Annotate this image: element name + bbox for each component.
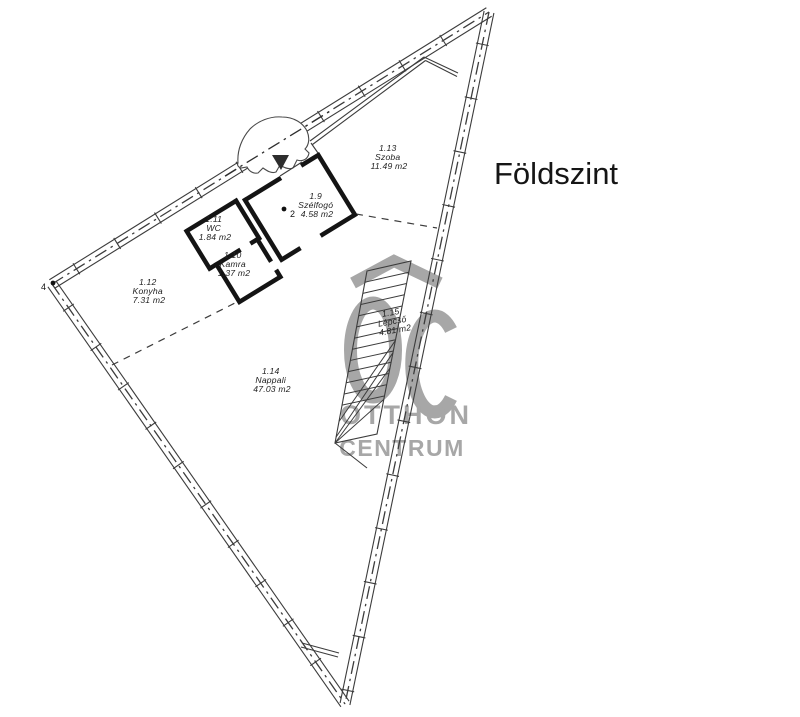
room-label-lepcso: 1.15 Lépcső 4.81 m2 xyxy=(375,304,412,337)
dashed-separation-konyha xyxy=(112,302,237,365)
entrance-point-marker: 2 xyxy=(282,207,295,219)
room-label-konyha: 1.12 Konyha 7.31 m2 xyxy=(133,277,166,305)
drawing-line xyxy=(228,540,239,547)
room-area: 1.84 m2 xyxy=(199,232,231,242)
drawing-line xyxy=(63,304,74,311)
corner-point-label: 4 xyxy=(41,282,46,292)
drawing-line xyxy=(363,283,407,293)
szoba-front-wall-outer xyxy=(310,57,424,141)
room-area: 4.58 m2 xyxy=(301,209,333,219)
south-tip-wall-outer xyxy=(302,643,339,653)
apex-connector-outer xyxy=(424,57,458,73)
drawing-line xyxy=(399,60,406,71)
room-area: 47.03 m2 xyxy=(253,384,290,394)
room-label-kamra: 1.10 Kamra 1.37 m2 xyxy=(218,250,250,278)
page-title: Földszint xyxy=(494,156,618,191)
room-label-nappali: 1.14 Nappali 47.03 m2 xyxy=(253,366,290,394)
drawing-line xyxy=(173,461,184,468)
room-label-szelfogo: 1.9 Szélfogó 4.58 m2 xyxy=(298,191,336,219)
drawing-line xyxy=(200,501,211,508)
drawing-line xyxy=(283,619,294,626)
room-label-szoba: 1.13 Szoba 11.49 m2 xyxy=(371,143,408,171)
drawing-line xyxy=(431,258,444,261)
south-tip-wall-inner xyxy=(301,647,338,657)
entrance-area xyxy=(225,110,332,176)
drawing-line xyxy=(350,13,494,705)
drawing-line xyxy=(118,383,129,390)
dashed-separation-szoba xyxy=(356,214,437,228)
drawing-line xyxy=(155,213,162,224)
szoba-front-wall-inner xyxy=(313,61,426,145)
canopy-wall-connector xyxy=(311,143,318,153)
drawing-line xyxy=(255,579,266,586)
drawing-line xyxy=(440,35,447,46)
entrance-point-dot xyxy=(282,207,287,212)
property-boundary-lines xyxy=(48,8,494,707)
drawing-line xyxy=(340,11,484,703)
corner-point-dot xyxy=(51,281,56,286)
watermark-text-otthon: OTTHON xyxy=(340,400,472,430)
drawing-line xyxy=(364,581,377,584)
entrance-point-label: 2 xyxy=(290,209,295,219)
room-area: 7.31 m2 xyxy=(133,295,165,305)
room-area: 1.37 m2 xyxy=(218,268,250,278)
drawing-line xyxy=(195,187,202,198)
drawing-line xyxy=(73,263,80,274)
drawing-line xyxy=(358,86,365,97)
room-area: 11.49 m2 xyxy=(371,161,408,171)
floor-plan-drawing: OTTHON CENTRUM 4 2 xyxy=(0,0,800,717)
drawing-line xyxy=(454,151,467,154)
drawing-line xyxy=(386,474,399,477)
drawing-line xyxy=(91,343,102,350)
drawing-line xyxy=(310,658,321,665)
apex-connector-inner xyxy=(426,61,458,77)
floor-plan-page: OTTHON CENTRUM 4 2 xyxy=(0,0,800,717)
drawing-line xyxy=(114,238,121,249)
drawing-line xyxy=(146,422,157,429)
